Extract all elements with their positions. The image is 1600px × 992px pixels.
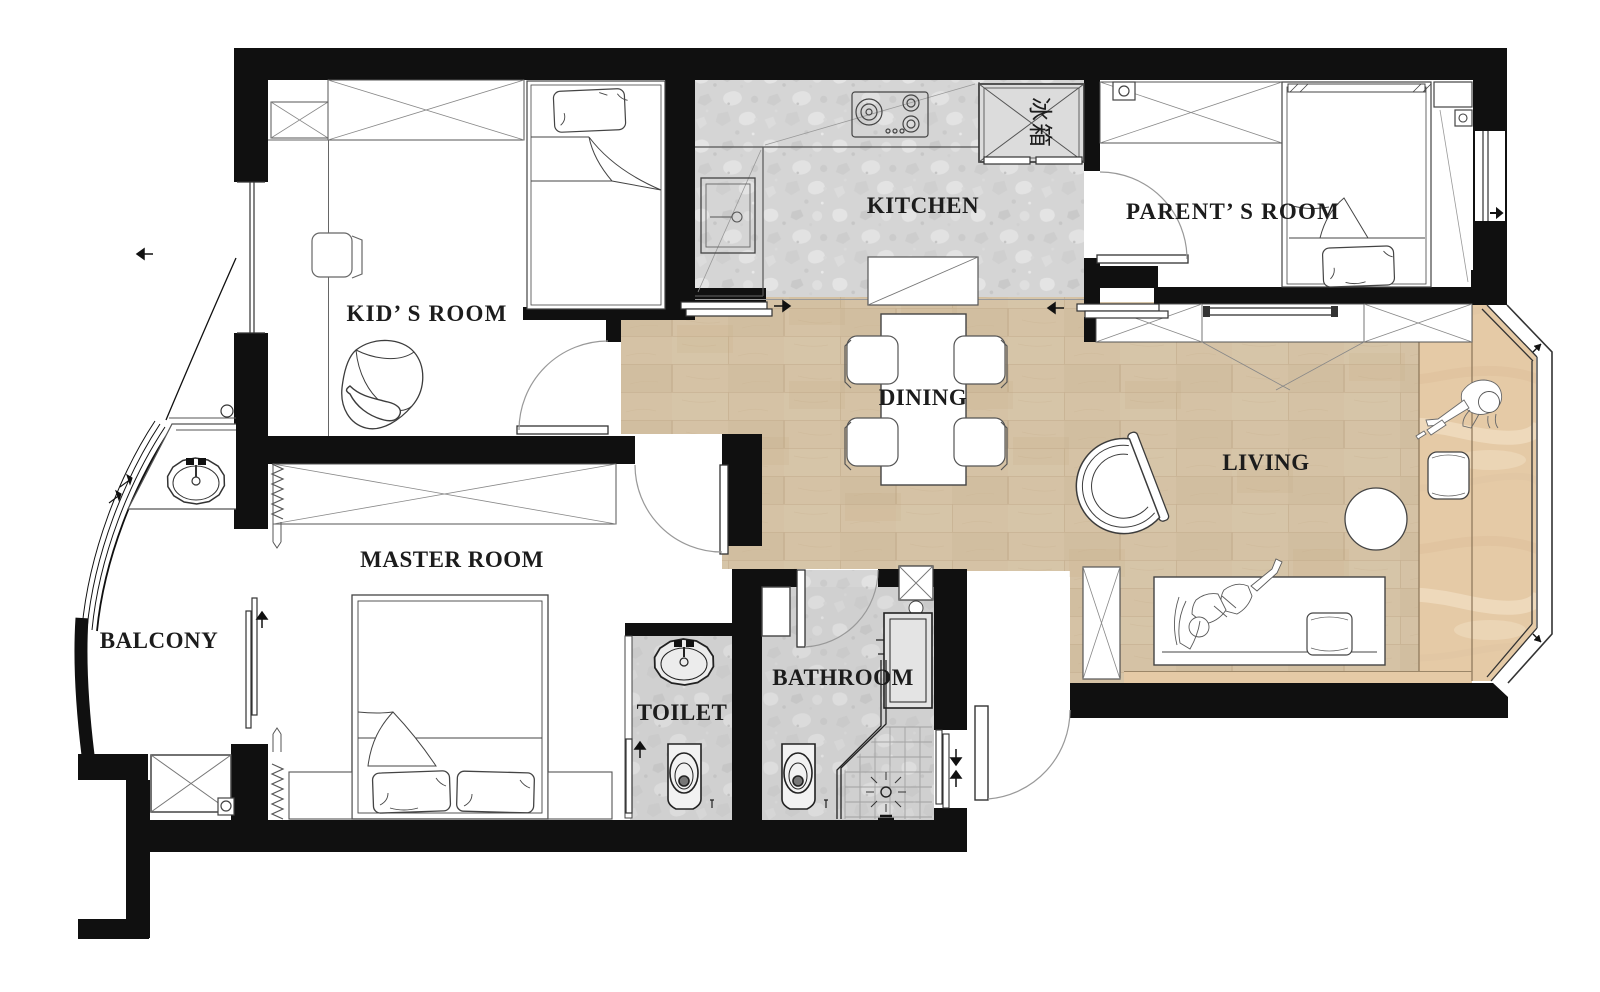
svg-text:LIVING: LIVING [1222,450,1309,475]
svg-text:BALCONY: BALCONY [100,628,219,653]
svg-text:KITCHEN: KITCHEN [867,193,979,218]
svg-text:MASTER ROOM: MASTER ROOM [360,547,544,572]
svg-text:KID’ S ROOM: KID’ S ROOM [347,301,508,326]
svg-text:PARENT’ S ROOM: PARENT’ S ROOM [1126,199,1340,224]
svg-text:TOILET: TOILET [637,700,728,725]
svg-text:BATHROOM: BATHROOM [772,665,914,690]
svg-text:DINING: DINING [879,385,968,410]
svg-text:冰箱: 冰箱 [1026,97,1053,149]
